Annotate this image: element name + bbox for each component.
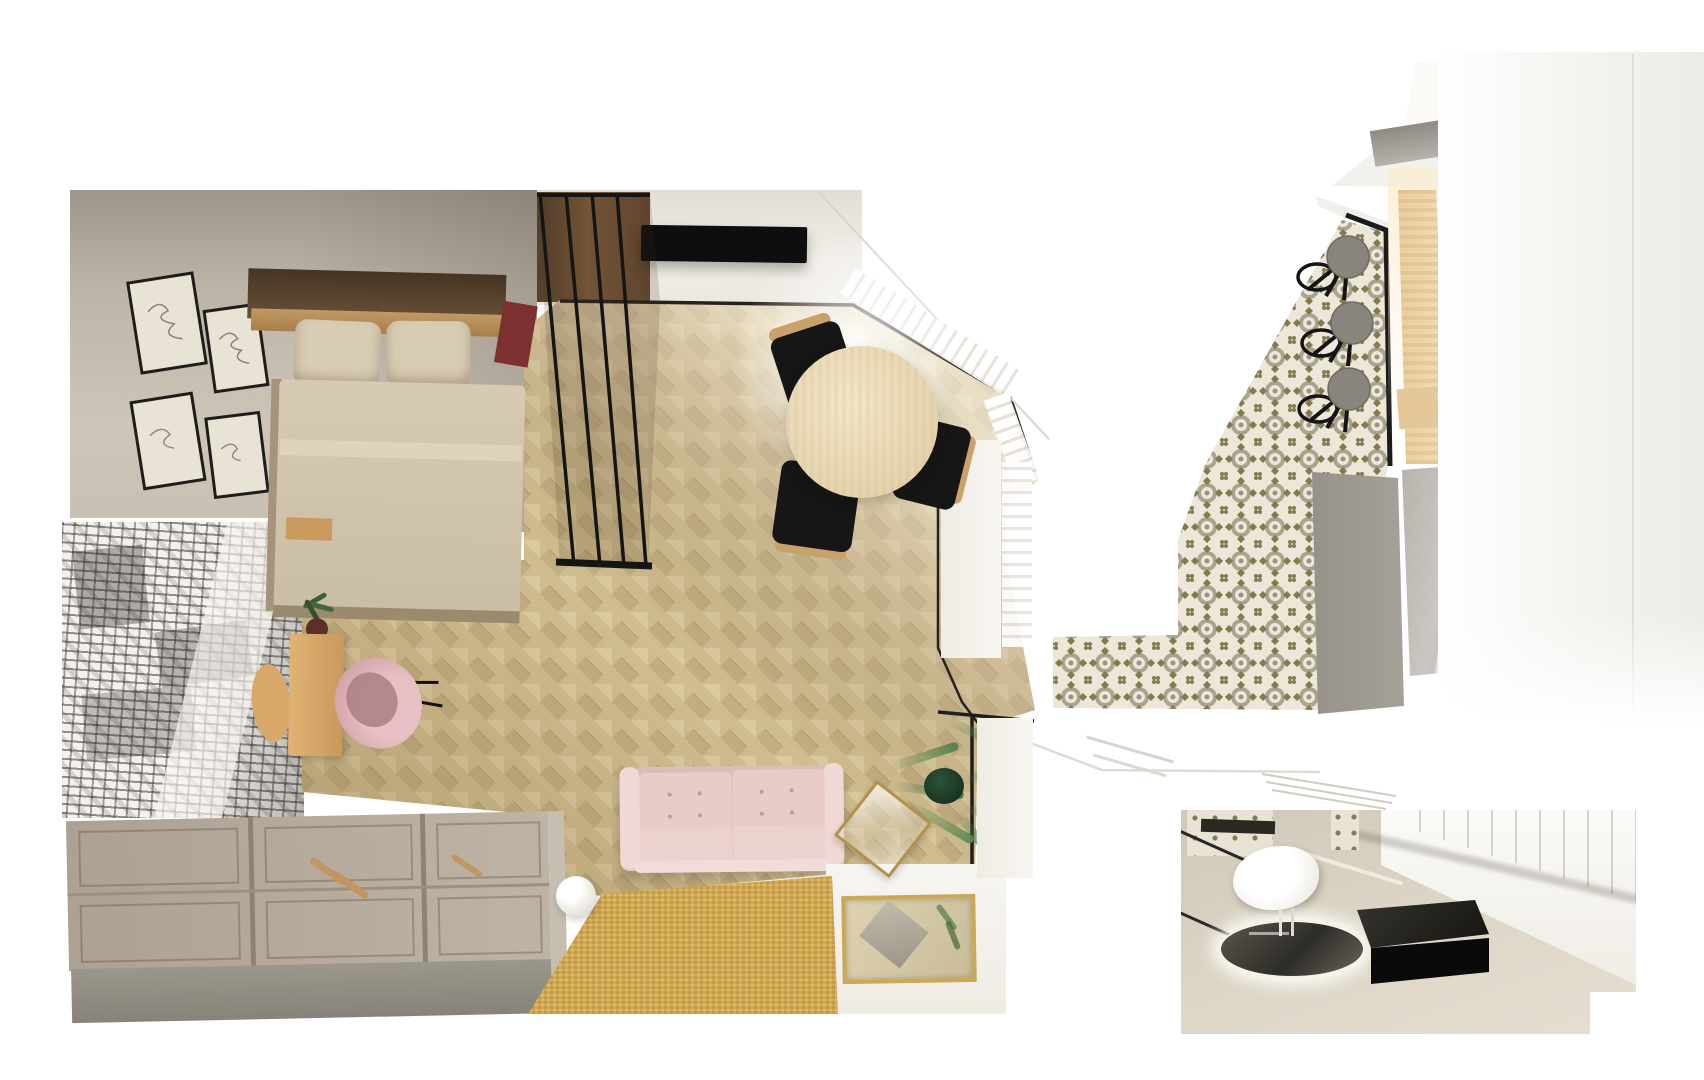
- sofa-back-cushion: [639, 772, 732, 833]
- sphere-floor-lamp: [556, 876, 596, 916]
- sofa-arm: [619, 767, 640, 869]
- wardrobe-panel: [80, 902, 241, 963]
- inset-dark-lintel: [1201, 819, 1275, 835]
- wardrobe: [66, 807, 570, 1025]
- kitchen-wood-block: [1397, 387, 1440, 430]
- wardrobe-front: [71, 959, 558, 1023]
- inset-tile-accent: [1331, 810, 1359, 850]
- sofa-button: [760, 790, 764, 794]
- bathroom-inset: [1181, 810, 1636, 1034]
- dining-table: [786, 346, 938, 498]
- tray-reflection: [859, 900, 928, 968]
- inset-corner-notch: [1590, 992, 1638, 1036]
- kitchen-cabinet-panel: [1312, 470, 1408, 716]
- mirror-reflection-streak: [1249, 932, 1289, 935]
- sofa-button: [790, 788, 794, 792]
- render-canvas: [0, 0, 1704, 1080]
- gold-mirror-tray: [841, 894, 977, 984]
- wine-glass-reflection: [1279, 910, 1282, 936]
- backlit-round-mirror: [1219, 920, 1365, 978]
- wardrobe-panel: [266, 898, 415, 959]
- wardrobe-panel: [78, 828, 239, 887]
- wine-glass-reflection: [1291, 908, 1294, 936]
- sofa-back-cushion: [732, 769, 825, 830]
- sofa-button: [698, 791, 702, 795]
- sofa: [619, 763, 844, 887]
- sofa-front-lip: [634, 859, 830, 873]
- sofa-button: [698, 813, 702, 817]
- wardrobe-panel: [436, 821, 541, 879]
- right-radiator-slats: [1002, 462, 1032, 647]
- glass-partition: [0, 0, 720, 600]
- wall-bottom-fade: [1438, 612, 1704, 744]
- sofa-button: [668, 815, 672, 819]
- palm-frond: [888, 741, 959, 772]
- sofa-button: [760, 812, 764, 816]
- floor-drain-lines: [1262, 774, 1396, 809]
- bath-wall-block: [977, 718, 1033, 878]
- plant-pot: [924, 768, 964, 804]
- sofa-button: [668, 793, 672, 797]
- sofa-arm: [823, 763, 844, 865]
- wardrobe-panel: [438, 895, 543, 955]
- kitchen-right-wall: [1438, 52, 1704, 744]
- sofa-button: [790, 810, 794, 814]
